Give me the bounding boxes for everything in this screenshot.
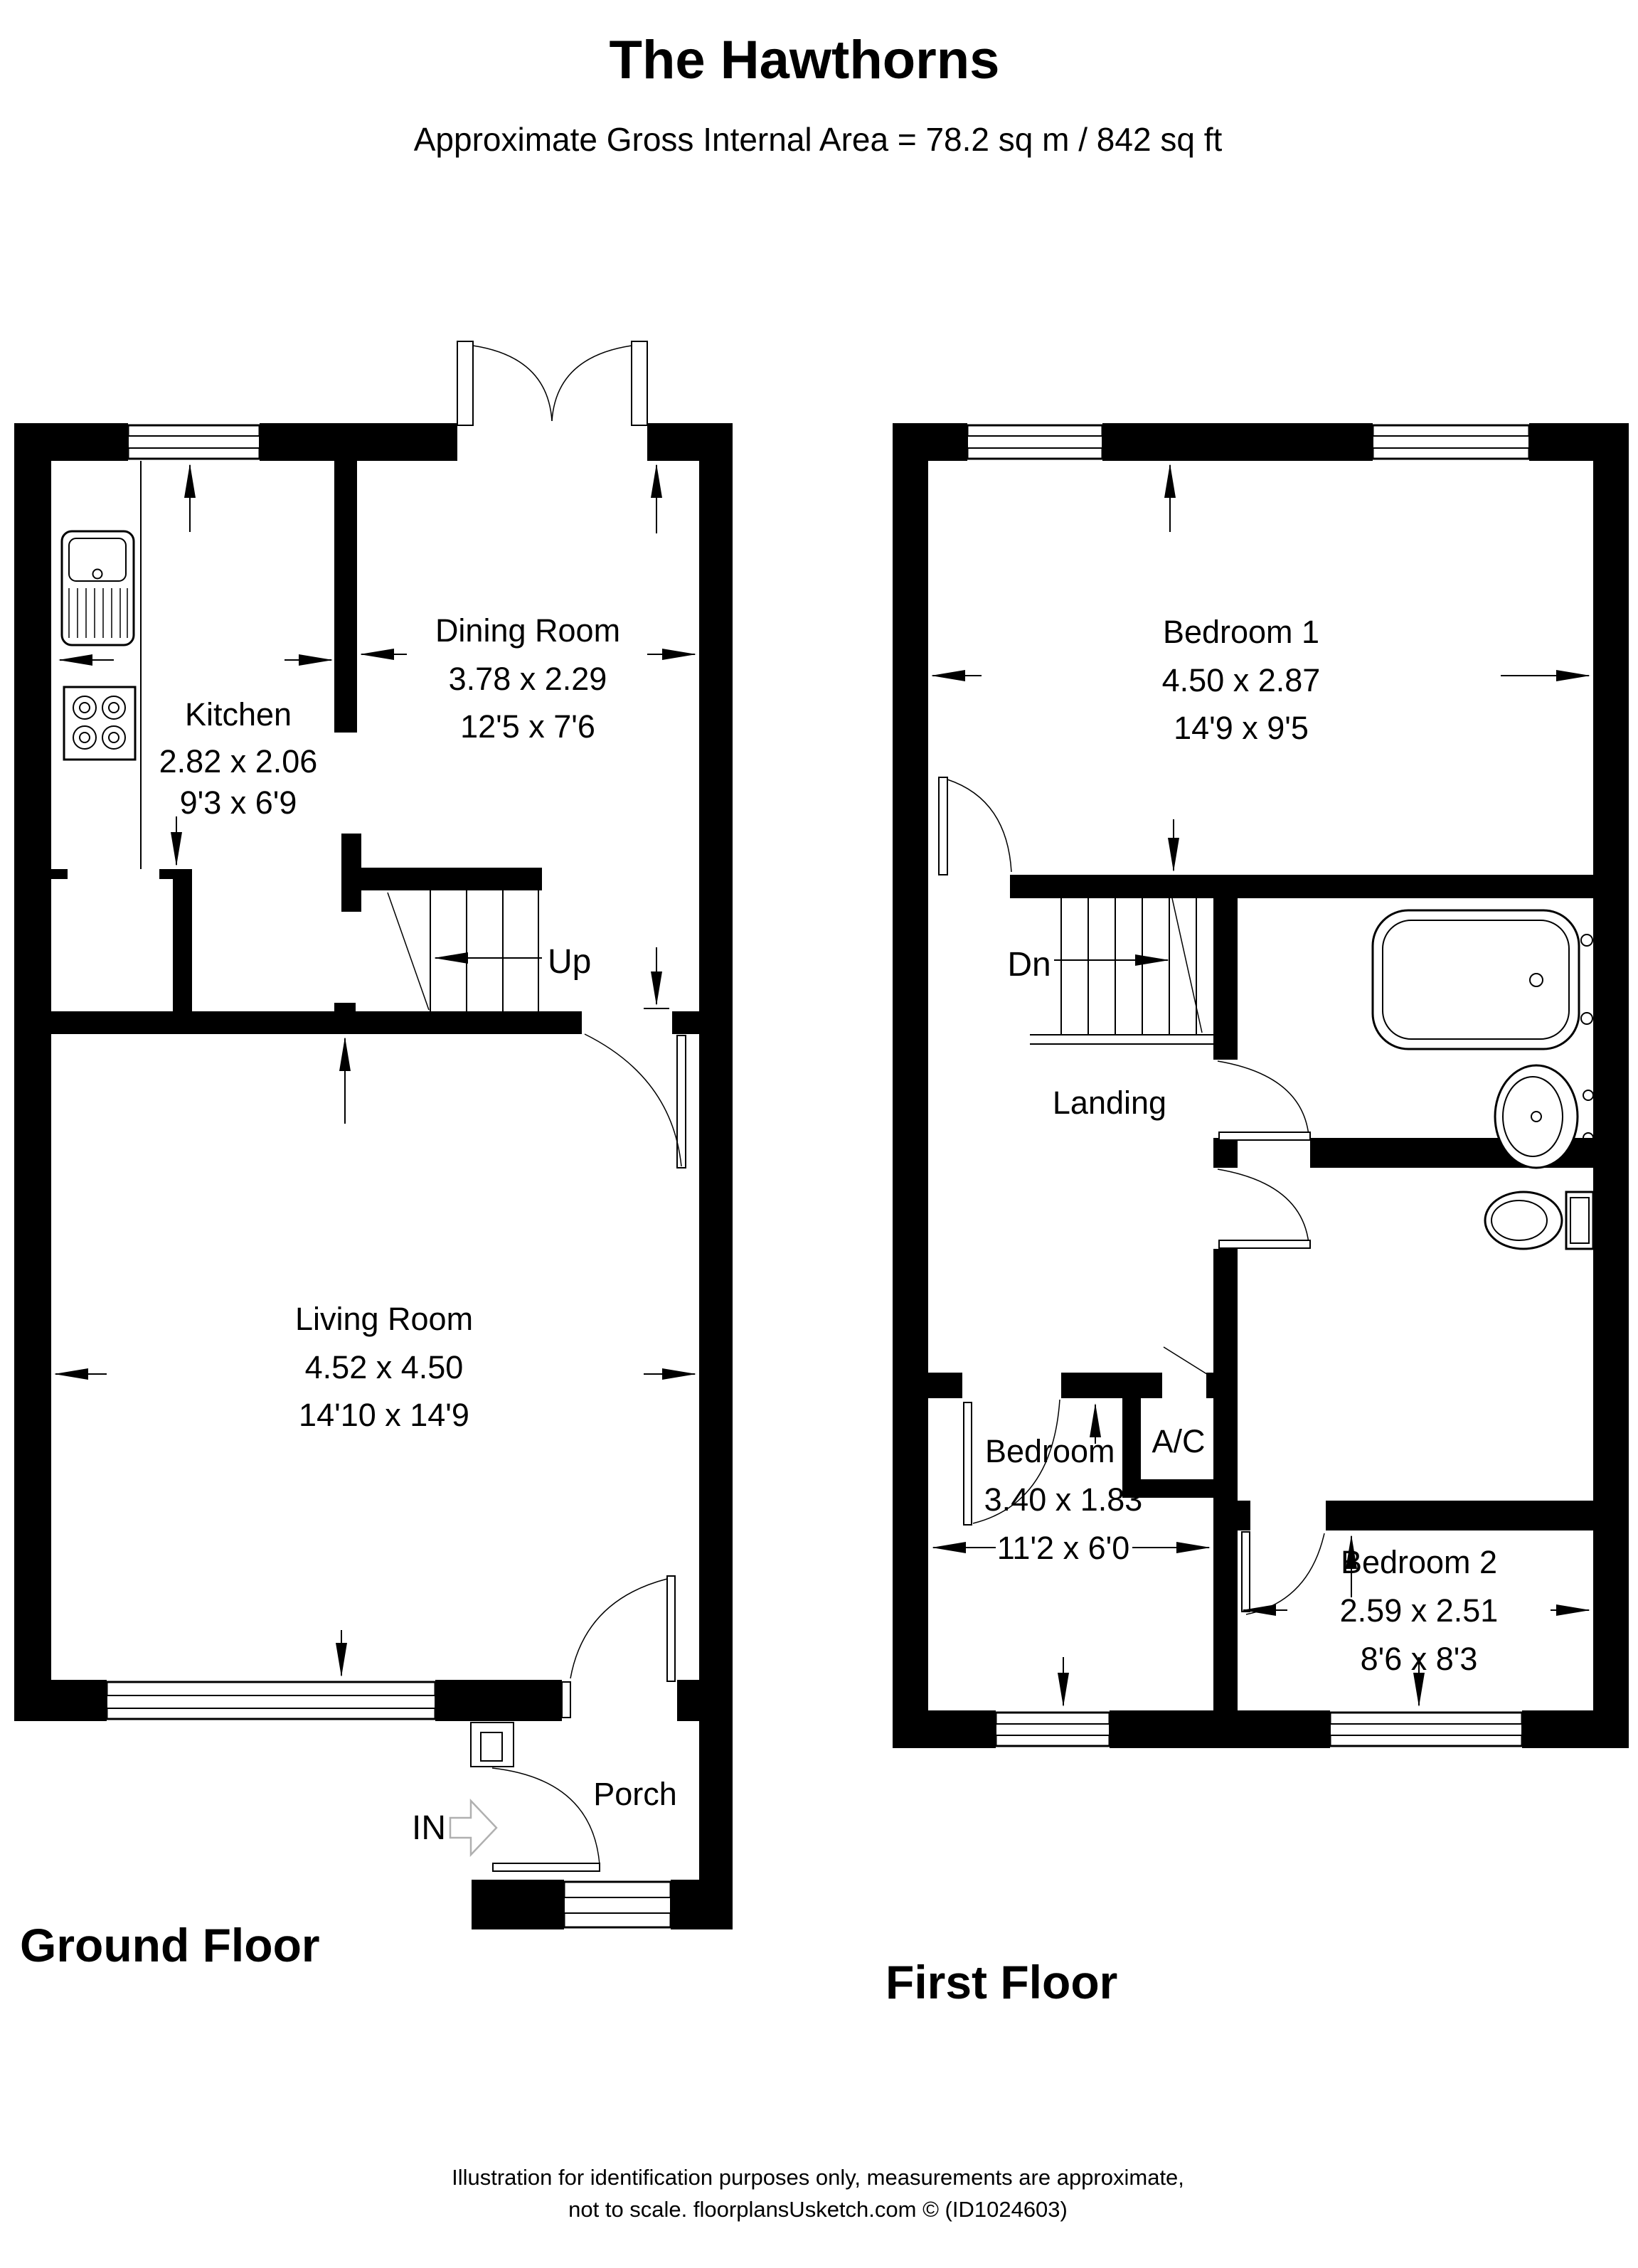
airing-cupboard-door [1164, 1347, 1209, 1375]
kitchen-label: Kitchen 2.82 x 2.06 9'3 x 6'9 [159, 696, 318, 821]
bedroom1-window-left [967, 425, 1102, 459]
porch-label: Porch [593, 1776, 677, 1812]
wc-door [1218, 1169, 1310, 1248]
footer: Illustration for identification purposes… [452, 2165, 1184, 2222]
airing-cupboard-label: A/C [1152, 1423, 1205, 1459]
first-floor-plan: Bedroom 1 4.50 x 2.87 14'9 x 9'5 Dn Land… [886, 423, 1629, 2008]
kitchen-sink [62, 531, 134, 645]
page-title: The Hawthorns [610, 30, 1000, 90]
living-room-metric: 4.52 x 4.50 [305, 1349, 464, 1385]
ground-floor-plan: Kitchen 2.82 x 2.06 9'3 x 6'9 Dining Roo… [14, 341, 733, 1971]
bedroom1-imperial: 14'9 x 9'5 [1174, 710, 1309, 746]
dining-room-imperial: 12'5 x 7'6 [460, 708, 595, 745]
bedroom3-label: Bedroom 3 3.40 x 1.83 11'2 x 6'0 [984, 1433, 1143, 1566]
staircase-down [1030, 898, 1213, 1044]
dining-room-label: Dining Room 3.78 x 2.29 12'5 x 7'6 [435, 612, 620, 745]
footer-line2: not to scale. floorplansUsketch.com © (I… [568, 2197, 1068, 2222]
bedroom1-metric: 4.50 x 2.87 [1162, 662, 1321, 698]
dining-room-name: Dining Room [435, 612, 620, 649]
living-room-imperial: 14'10 x 14'9 [299, 1397, 469, 1433]
landing-label: Landing [1053, 1085, 1166, 1121]
header: The Hawthorns Approximate Gross Internal… [414, 30, 1223, 158]
porch-window [564, 1882, 671, 1927]
dining-room-metric: 3.78 x 2.29 [449, 661, 607, 697]
bedroom2-imperial: 8'6 x 8'3 [1361, 1641, 1478, 1677]
bedroom1-name: Bedroom 1 [1163, 614, 1319, 650]
bedroom2-metric: 2.59 x 2.51 [1340, 1592, 1499, 1629]
bathtub [1373, 910, 1592, 1049]
stairs-down-label: Dn [1007, 946, 1051, 984]
floorplan-canvas: The Hawthorns Approximate Gross Internal… [0, 0, 1638, 2268]
kitchen-hob [64, 687, 135, 760]
front-door [471, 1723, 600, 1871]
bedroom2-name: Bedroom 2 [1341, 1544, 1497, 1580]
bedroom2-label: Bedroom 2 2.59 x 2.51 8'6 x 8'3 [1340, 1544, 1499, 1677]
bathroom-door [1218, 1061, 1310, 1140]
page-subtitle: Approximate Gross Internal Area = 78.2 s… [414, 121, 1223, 158]
bedroom1-window-right [1373, 425, 1529, 459]
bedroom1-door [939, 777, 1011, 875]
bedroom3-name: Bedroom 3 [985, 1433, 1142, 1469]
toilet [1485, 1192, 1593, 1249]
bedroom1-label: Bedroom 1 4.50 x 2.87 14'9 x 9'5 [1162, 614, 1321, 746]
bedroom2-window [1330, 1713, 1522, 1746]
entrance-label: IN [412, 1809, 446, 1847]
first-floor-title: First Floor [886, 1956, 1117, 2008]
floorplan-page: The Hawthorns Approximate Gross Internal… [0, 0, 1638, 2268]
entrance-arrow-icon [450, 1801, 496, 1855]
living-room-label: Living Room 4.52 x 4.50 14'10 x 14'9 [295, 1301, 473, 1433]
staircase-up [388, 890, 538, 1011]
kitchen-metric: 2.82 x 2.06 [159, 743, 318, 779]
bedroom3-imperial: 11'2 x 6'0 [997, 1530, 1129, 1566]
bedroom2-door [1242, 1532, 1324, 1614]
porch-inner-door [562, 1576, 675, 1718]
kitchen-name: Kitchen [185, 696, 292, 733]
living-room-window [107, 1682, 435, 1719]
dining-french-doors [457, 341, 647, 425]
kitchen-imperial: 9'3 x 6'9 [180, 784, 297, 821]
living-room-name: Living Room [295, 1301, 473, 1337]
kitchen-window [128, 425, 260, 459]
footer-line1: Illustration for identification purposes… [452, 2165, 1184, 2190]
bedroom3-metric: 3.40 x 1.83 [984, 1481, 1143, 1518]
bedroom3-window [996, 1713, 1110, 1746]
living-room-door [585, 1034, 686, 1168]
stairs-up-label: Up [548, 943, 591, 981]
ground-floor-title: Ground Floor [20, 1919, 320, 1971]
